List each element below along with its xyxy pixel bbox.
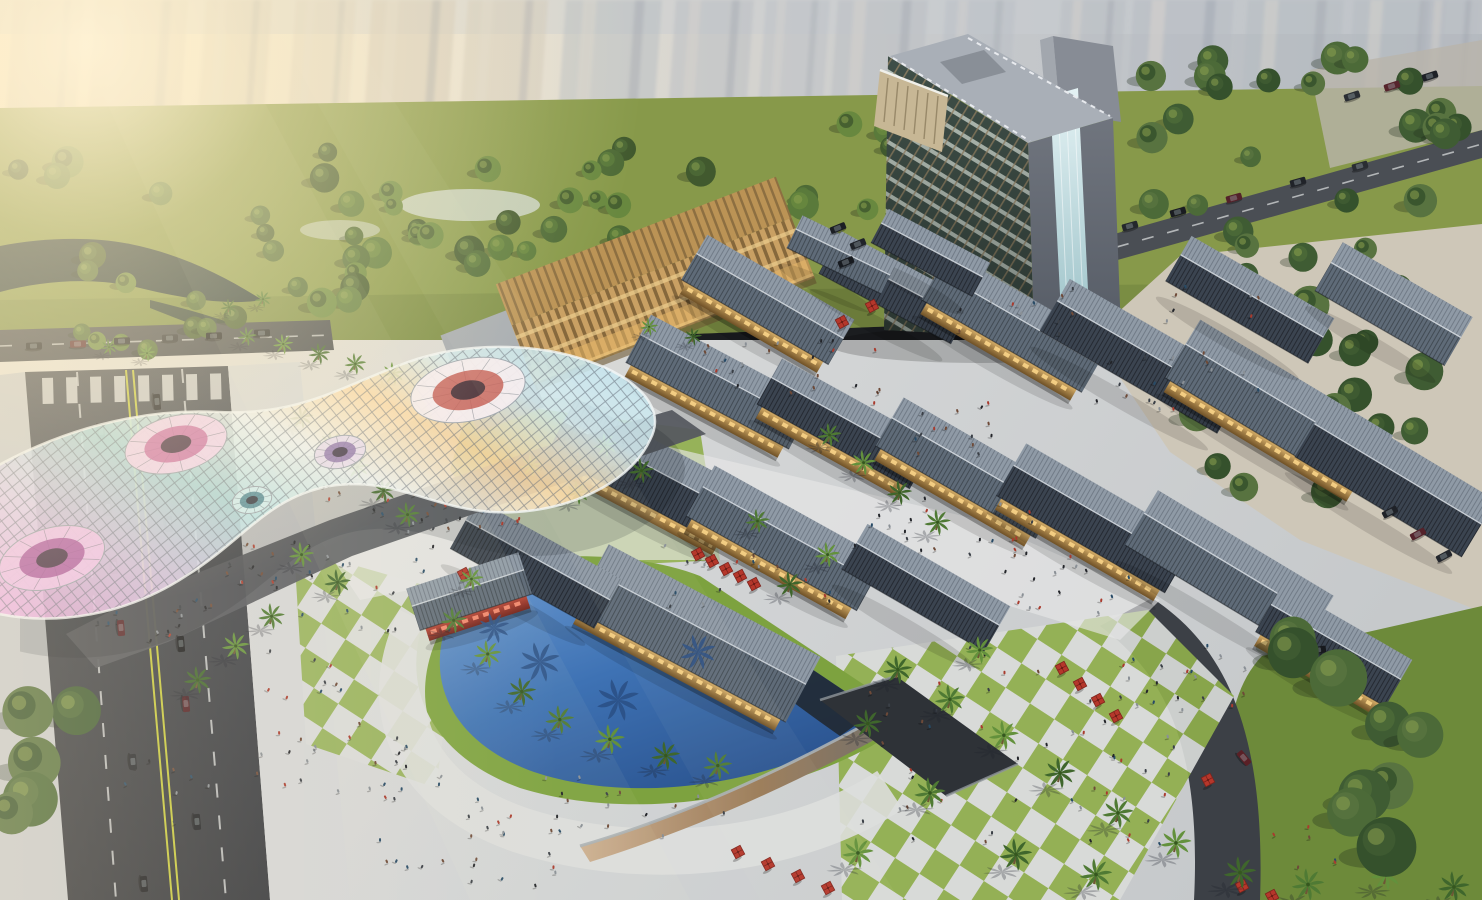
warm-light-wash <box>0 0 560 900</box>
architectural-rendering <box>0 0 1482 900</box>
aerial-scene <box>0 0 1482 900</box>
